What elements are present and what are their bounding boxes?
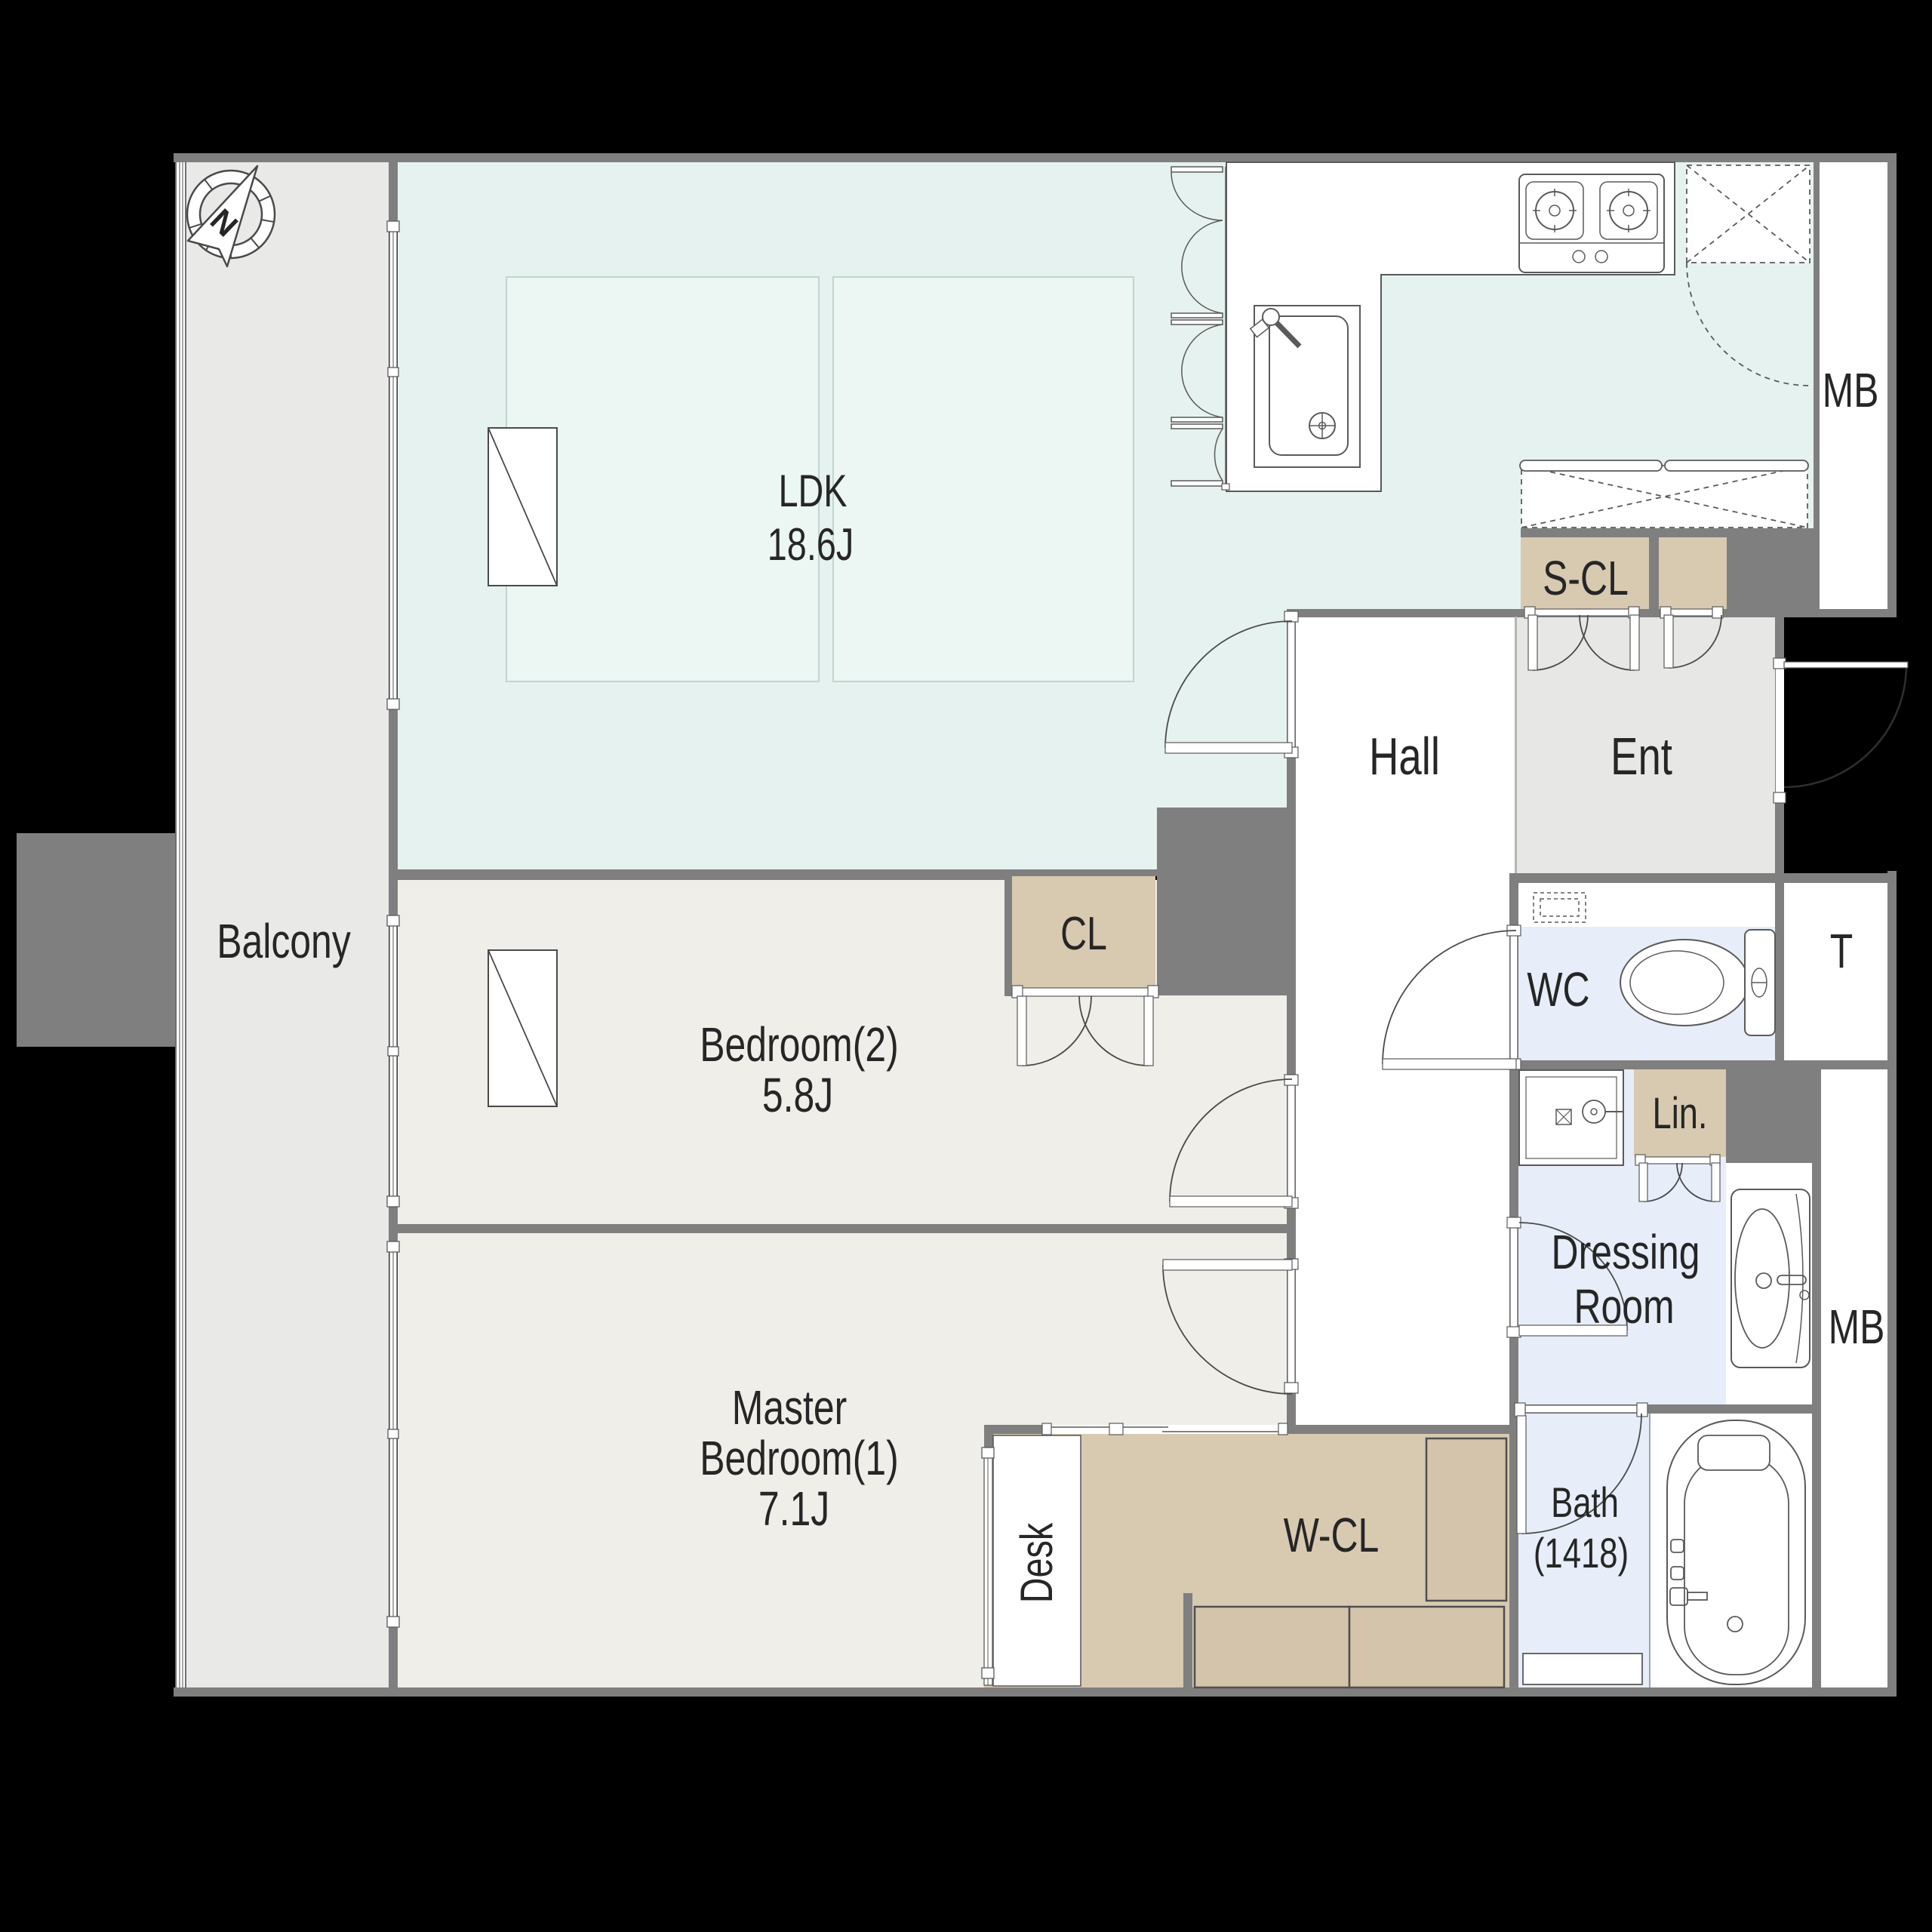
svg-text:5.8J: 5.8J bbox=[762, 1069, 833, 1122]
svg-text:Ent: Ent bbox=[1611, 728, 1672, 786]
svg-text:WC: WC bbox=[1527, 963, 1589, 1017]
svg-text:Bedroom(2): Bedroom(2) bbox=[700, 1018, 898, 1072]
svg-text:Master: Master bbox=[732, 1381, 848, 1435]
svg-text:W-CL: W-CL bbox=[1284, 1509, 1380, 1562]
svg-text:MB: MB bbox=[1823, 364, 1879, 417]
svg-text:Hall: Hall bbox=[1369, 728, 1440, 786]
svg-text:18.6J: 18.6J bbox=[768, 519, 854, 570]
svg-text:7.1J: 7.1J bbox=[758, 1482, 829, 1536]
svg-text:Room: Room bbox=[1574, 1280, 1674, 1334]
svg-text:Lin.: Lin. bbox=[1653, 1090, 1708, 1139]
svg-text:LDK: LDK bbox=[778, 466, 847, 516]
svg-text:Bath: Bath bbox=[1551, 1479, 1619, 1526]
svg-text:Balcony: Balcony bbox=[217, 915, 351, 968]
svg-text:Dressing: Dressing bbox=[1552, 1226, 1700, 1279]
svg-text:MB: MB bbox=[1829, 1300, 1885, 1354]
svg-text:T: T bbox=[1830, 924, 1853, 978]
svg-text:Bedroom(1): Bedroom(1) bbox=[700, 1432, 898, 1485]
svg-text:Desk: Desk bbox=[1011, 1523, 1062, 1604]
svg-text:S-CL: S-CL bbox=[1543, 552, 1629, 605]
svg-text:CL: CL bbox=[1060, 907, 1107, 959]
svg-text:(1418): (1418) bbox=[1534, 1530, 1629, 1577]
